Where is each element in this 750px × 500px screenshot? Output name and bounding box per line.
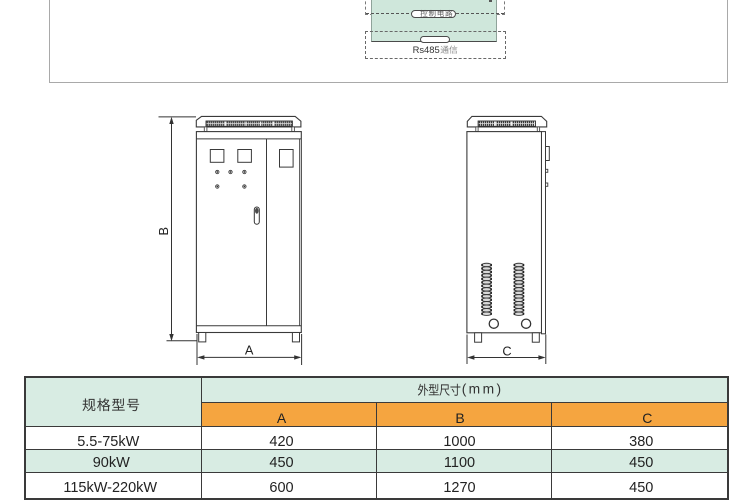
svg-text:(mm): (mm)	[462, 382, 504, 397]
